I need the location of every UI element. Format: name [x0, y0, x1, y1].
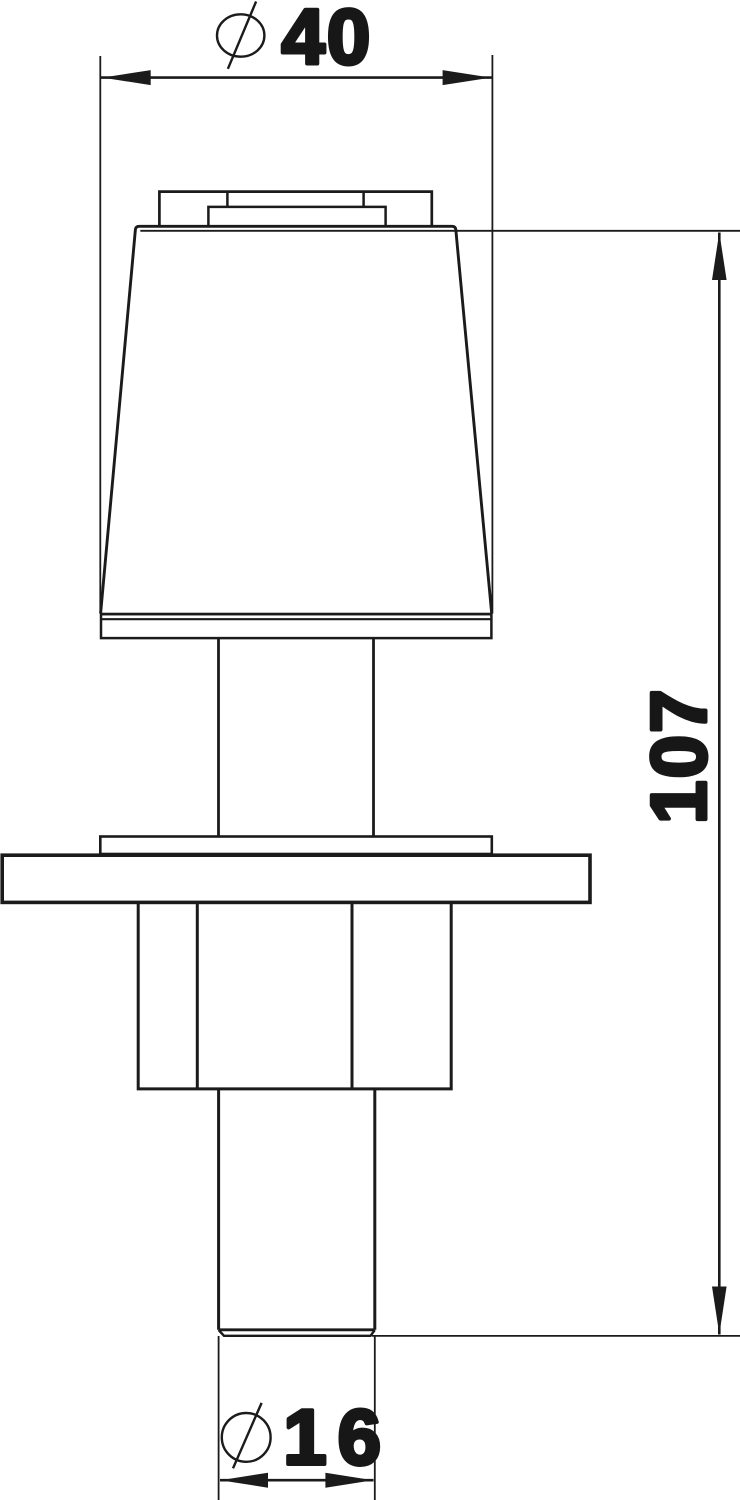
svg-text:16: 16 [283, 1393, 392, 1481]
svg-text:107: 107 [635, 687, 723, 824]
svg-text:40: 40 [282, 0, 373, 80]
